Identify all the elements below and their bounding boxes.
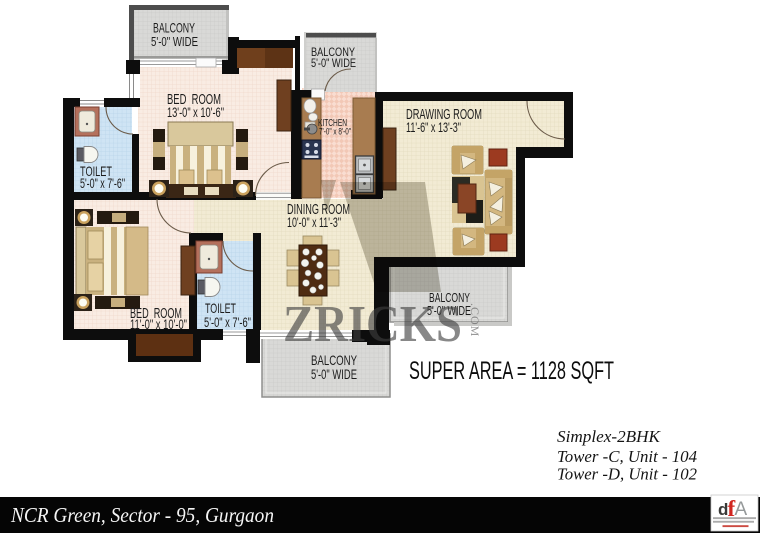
svg-text:5'-0" WIDE: 5'-0" WIDE [311,56,356,70]
svg-text:5'-0" x 7'-6": 5'-0" x 7'-6" [204,315,251,330]
svg-text:10'-0" x 11'-3": 10'-0" x 11'-3" [287,214,341,230]
svg-text:11'-0" x 10'-0": 11'-0" x 10'-0" [130,316,187,332]
svg-text:Simplex-2BHK: Simplex-2BHK [557,427,662,446]
svg-text:Tower -D, Unit - 102: Tower -D, Unit - 102 [557,465,697,484]
svg-text:5'-0" x 7'-6": 5'-0" x 7'-6" [80,176,125,191]
svg-text:NCR Green, Sector - 95, Gurgao: NCR Green, Sector - 95, Gurgaon [10,503,274,527]
svg-text:SUPER AREA = 1128 SQFT: SUPER AREA = 1128 SQFT [409,357,614,385]
svg-text:7'-0" x 8'-0": 7'-0" x 8'-0" [319,127,351,138]
svg-text:13'-0" x 10'-6": 13'-0" x 10'-6" [167,104,224,120]
svg-text:Tower -C, Unit - 104: Tower -C, Unit - 104 [557,447,697,466]
svg-text:ZRICKS: ZRICKS [283,296,462,353]
svg-text:11'-6" x 13'-3": 11'-6" x 13'-3" [406,119,461,135]
svg-text:5'-0" WIDE: 5'-0" WIDE [151,34,198,49]
svg-text:TOILET: TOILET [205,300,236,316]
svg-text:5'-0" WIDE: 5'-0" WIDE [311,367,357,382]
svg-text:BALCONY: BALCONY [311,352,357,368]
svg-text:A: A [735,499,748,520]
svg-text:.COM: .COM [468,303,482,337]
